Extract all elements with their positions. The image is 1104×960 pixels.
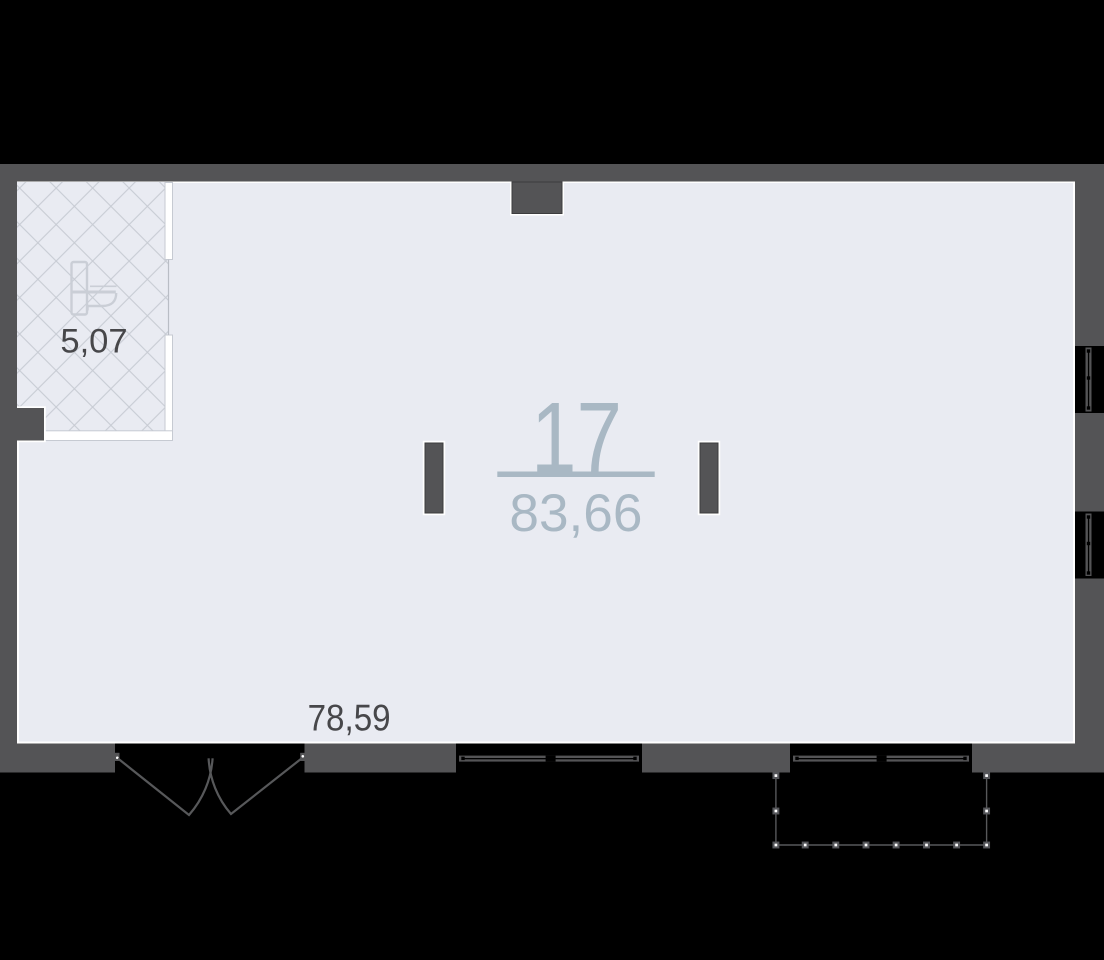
svg-text:83,66: 83,66 [509, 484, 642, 543]
svg-text:17: 17 [531, 382, 622, 494]
svg-text:78,59: 78,59 [308, 698, 391, 739]
svg-text:5,07: 5,07 [60, 323, 127, 361]
